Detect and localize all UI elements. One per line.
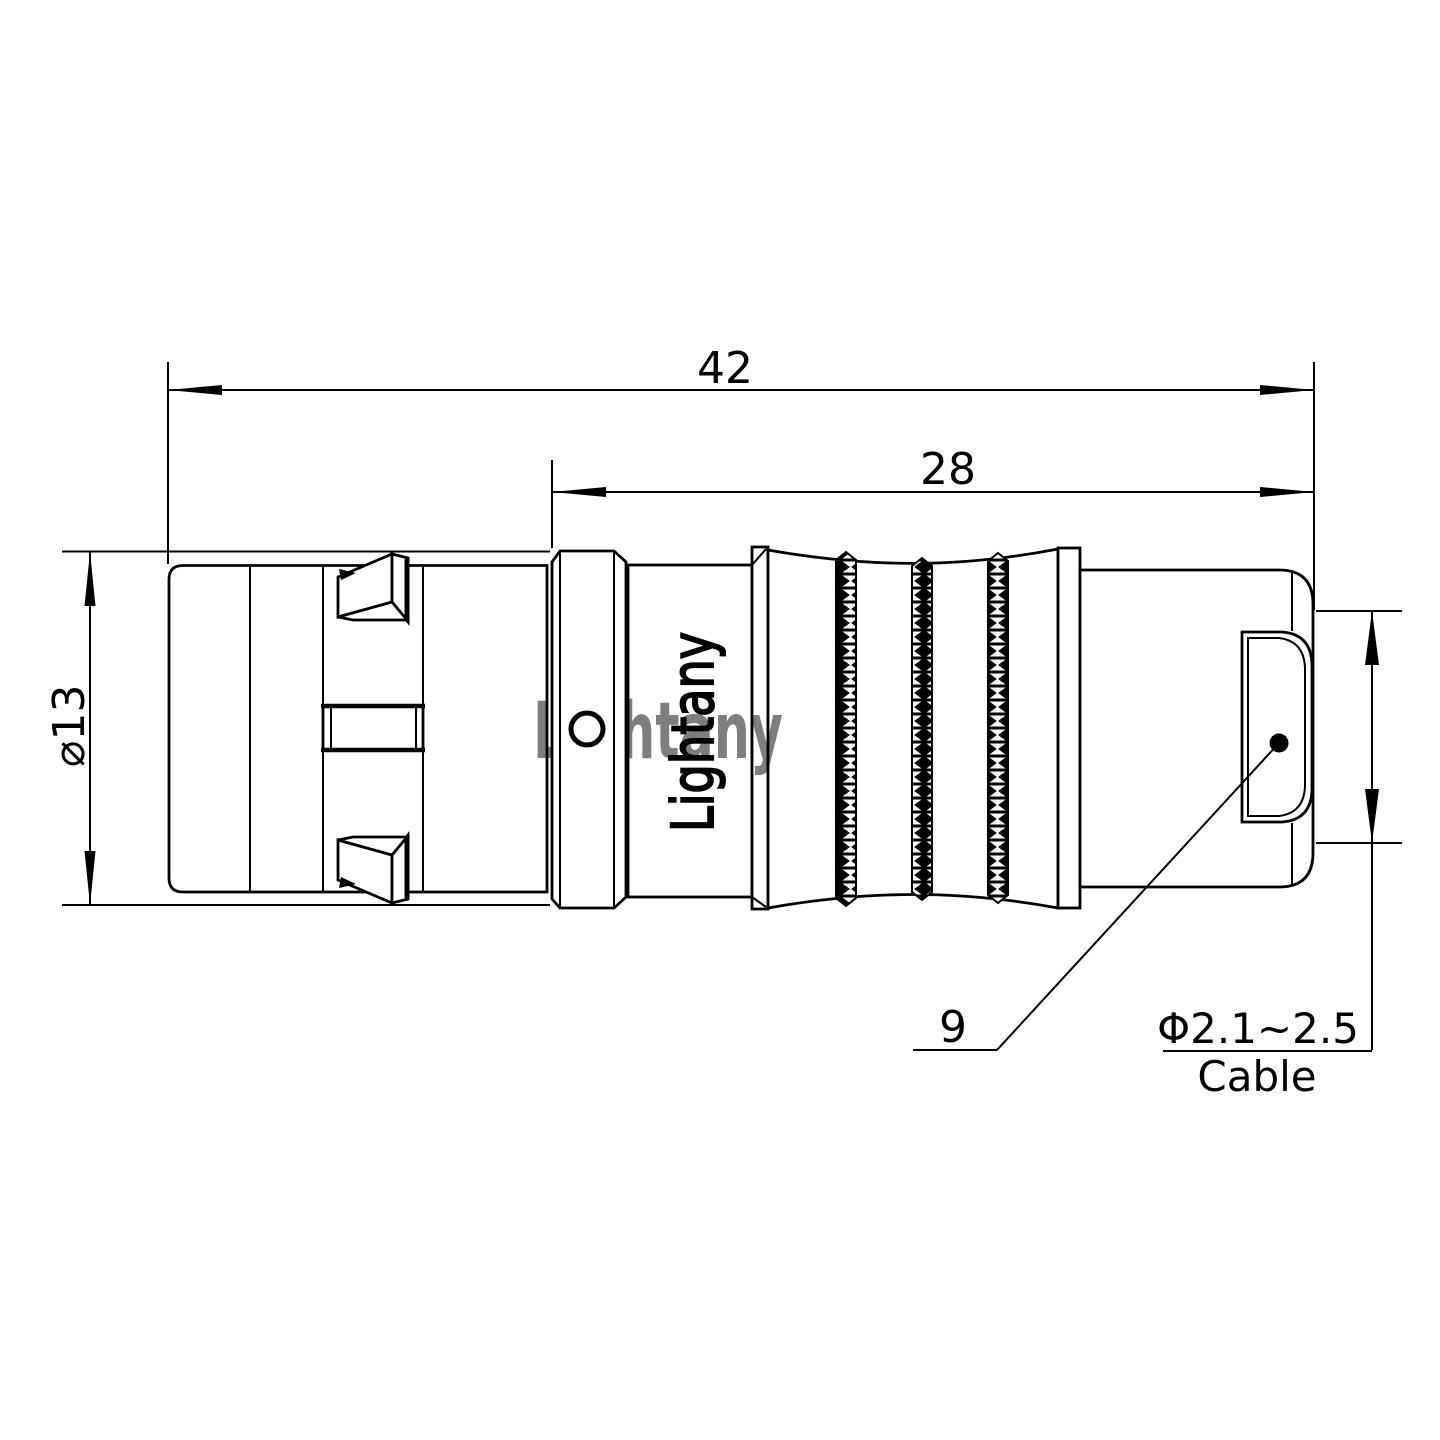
dim-text-28: 28 xyxy=(920,444,976,495)
collar xyxy=(552,551,626,908)
dimension-rear-length: 28 xyxy=(552,444,1314,497)
knurl-band-2 xyxy=(912,558,932,900)
arrowhead-13-down xyxy=(85,851,96,905)
arrowhead-42-left xyxy=(168,385,222,395)
cable-boot xyxy=(1242,632,1312,822)
technical-drawing-canvas: Lightany Lightany 42 28 xyxy=(0,0,1440,1440)
dimension-diameter: ⌀13 xyxy=(44,552,96,905)
arrowhead-cable-up xyxy=(1365,611,1379,665)
knurl-band-3 xyxy=(988,553,1008,903)
dim-text-cable-range: Φ2.1~2.5 xyxy=(1157,1004,1359,1053)
collar-hole xyxy=(571,713,603,745)
latch-middle-block xyxy=(321,706,425,750)
knurl-band-1 xyxy=(836,552,856,906)
dim-text-42: 42 xyxy=(697,343,753,394)
rear-collar-band xyxy=(1058,548,1080,908)
arrowhead-13-up xyxy=(85,552,96,606)
cable-boot-outer xyxy=(1242,632,1312,822)
latch-middle-block-body xyxy=(323,706,423,750)
dim-text-13: ⌀13 xyxy=(44,685,95,767)
dimension-overall-length: 42 xyxy=(168,343,1314,395)
dim-text-cable-word: Cable xyxy=(1197,1052,1316,1101)
leader-dot xyxy=(1270,734,1289,753)
arrowhead-cable-down xyxy=(1365,789,1379,843)
dim-text-9: 9 xyxy=(939,1002,967,1053)
arrowhead-28-left xyxy=(552,487,606,497)
arrowhead-28-right xyxy=(1260,487,1314,497)
arrowhead-42-right xyxy=(1260,385,1314,395)
drawing-page: Lightany Lightany 42 28 xyxy=(0,0,1440,1440)
